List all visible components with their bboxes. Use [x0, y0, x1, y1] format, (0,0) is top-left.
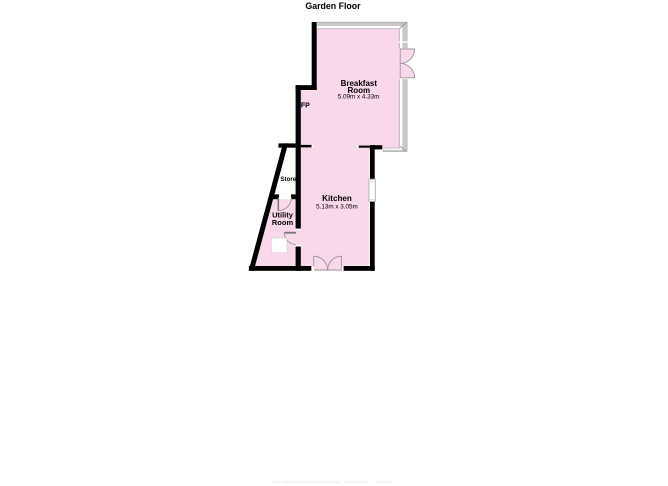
svg-text:FP: FP — [301, 102, 310, 109]
svg-text:Store: Store — [280, 176, 296, 183]
svg-text:5.13m x 3.05m: 5.13m x 3.05m — [316, 203, 358, 210]
svg-text:5.09m x 4.33m: 5.09m x 4.33m — [338, 94, 380, 101]
svg-text:Garden Floor: Garden Floor — [305, 1, 361, 11]
svg-text:Room: Room — [272, 218, 294, 227]
svg-text:Kitchen: Kitchen — [322, 194, 352, 203]
